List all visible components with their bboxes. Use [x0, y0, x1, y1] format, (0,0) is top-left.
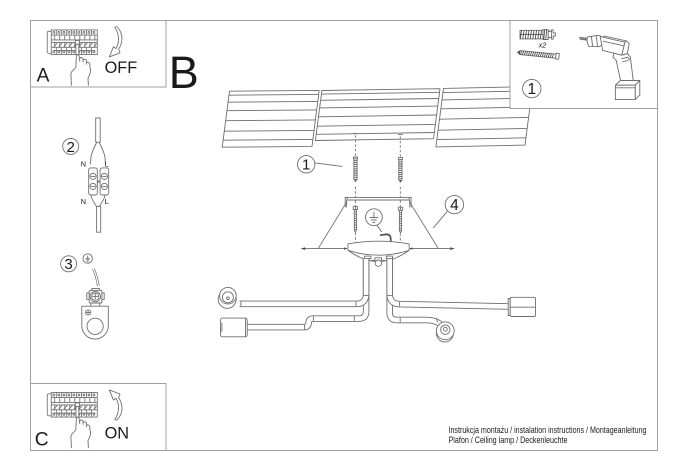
svg-text:ON: ON — [105, 424, 129, 442]
svg-text:N: N — [81, 160, 86, 169]
svg-text:L: L — [105, 197, 109, 206]
svg-text:3: 3 — [64, 256, 72, 273]
svg-text:1: 1 — [302, 157, 310, 174]
svg-text:L: L — [105, 160, 109, 169]
svg-text:x2: x2 — [538, 41, 547, 50]
svg-text:1: 1 — [527, 81, 536, 98]
svg-text:N: N — [81, 197, 86, 206]
svg-text:2: 2 — [67, 139, 75, 156]
svg-text:C: C — [35, 430, 49, 451]
svg-text:4: 4 — [450, 197, 459, 214]
svg-text:OFF: OFF — [105, 59, 138, 77]
svg-text:B: B — [169, 47, 199, 98]
svg-text:Plafon / Ceiling lamp / Decken: Plafon / Ceiling lamp / Deckenleuchte — [449, 435, 568, 445]
svg-text:Instrukcja montażu / instalati: Instrukcja montażu / instalation instruc… — [449, 425, 647, 435]
svg-text:A: A — [37, 65, 50, 86]
